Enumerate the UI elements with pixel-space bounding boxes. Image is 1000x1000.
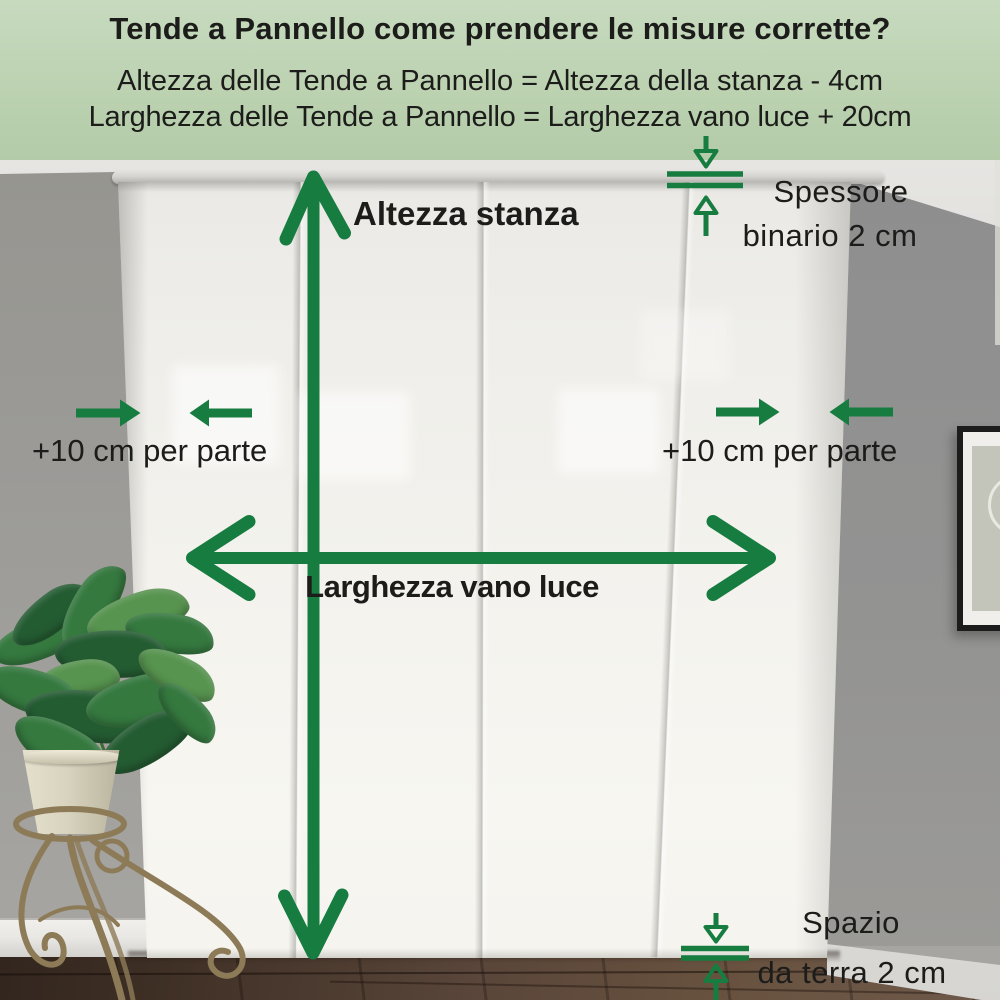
right-margin-label: +10 cm per parte [662,433,897,469]
left-margin-label: +10 cm per parte [32,433,267,469]
rail-thickness-label-line2: binario 2 cm [743,218,918,254]
panel-seam [650,182,696,958]
frame-art-circle [988,474,1000,536]
stand-right-leg [92,840,243,976]
stand-left-leg [21,836,63,965]
room-height-label: Altezza stanza [353,195,579,233]
light-reflection [558,388,660,474]
width-formula-text: Larghezza delle Tende a Pannello = Largh… [0,101,1000,134]
picture-frame [957,426,1000,631]
stand-ring [16,809,124,839]
light-reflection [300,392,410,480]
photo-edge-highlight [995,160,1000,345]
frame-artwork [972,446,1000,611]
window-width-label: Larghezza vano luce [305,569,599,605]
floor-gap-label-line2: da terra 2 cm [757,955,946,991]
height-formula-text: Altezza delle Tende a Pannello = Altezza… [0,65,1000,98]
infographic-header: Tende a Pannello come prendere le misure… [0,0,1000,160]
light-reflection [640,310,730,380]
page-title: Tende a Pannello come prendere le misure… [0,11,1000,47]
plant-stand [0,740,300,1000]
floor-gap-label-line1: Spazio [802,905,900,941]
infographic-page: Tende a Pannello come prendere le misure… [0,0,1000,1000]
rail-thickness-label-line1: Spessore [774,174,909,210]
